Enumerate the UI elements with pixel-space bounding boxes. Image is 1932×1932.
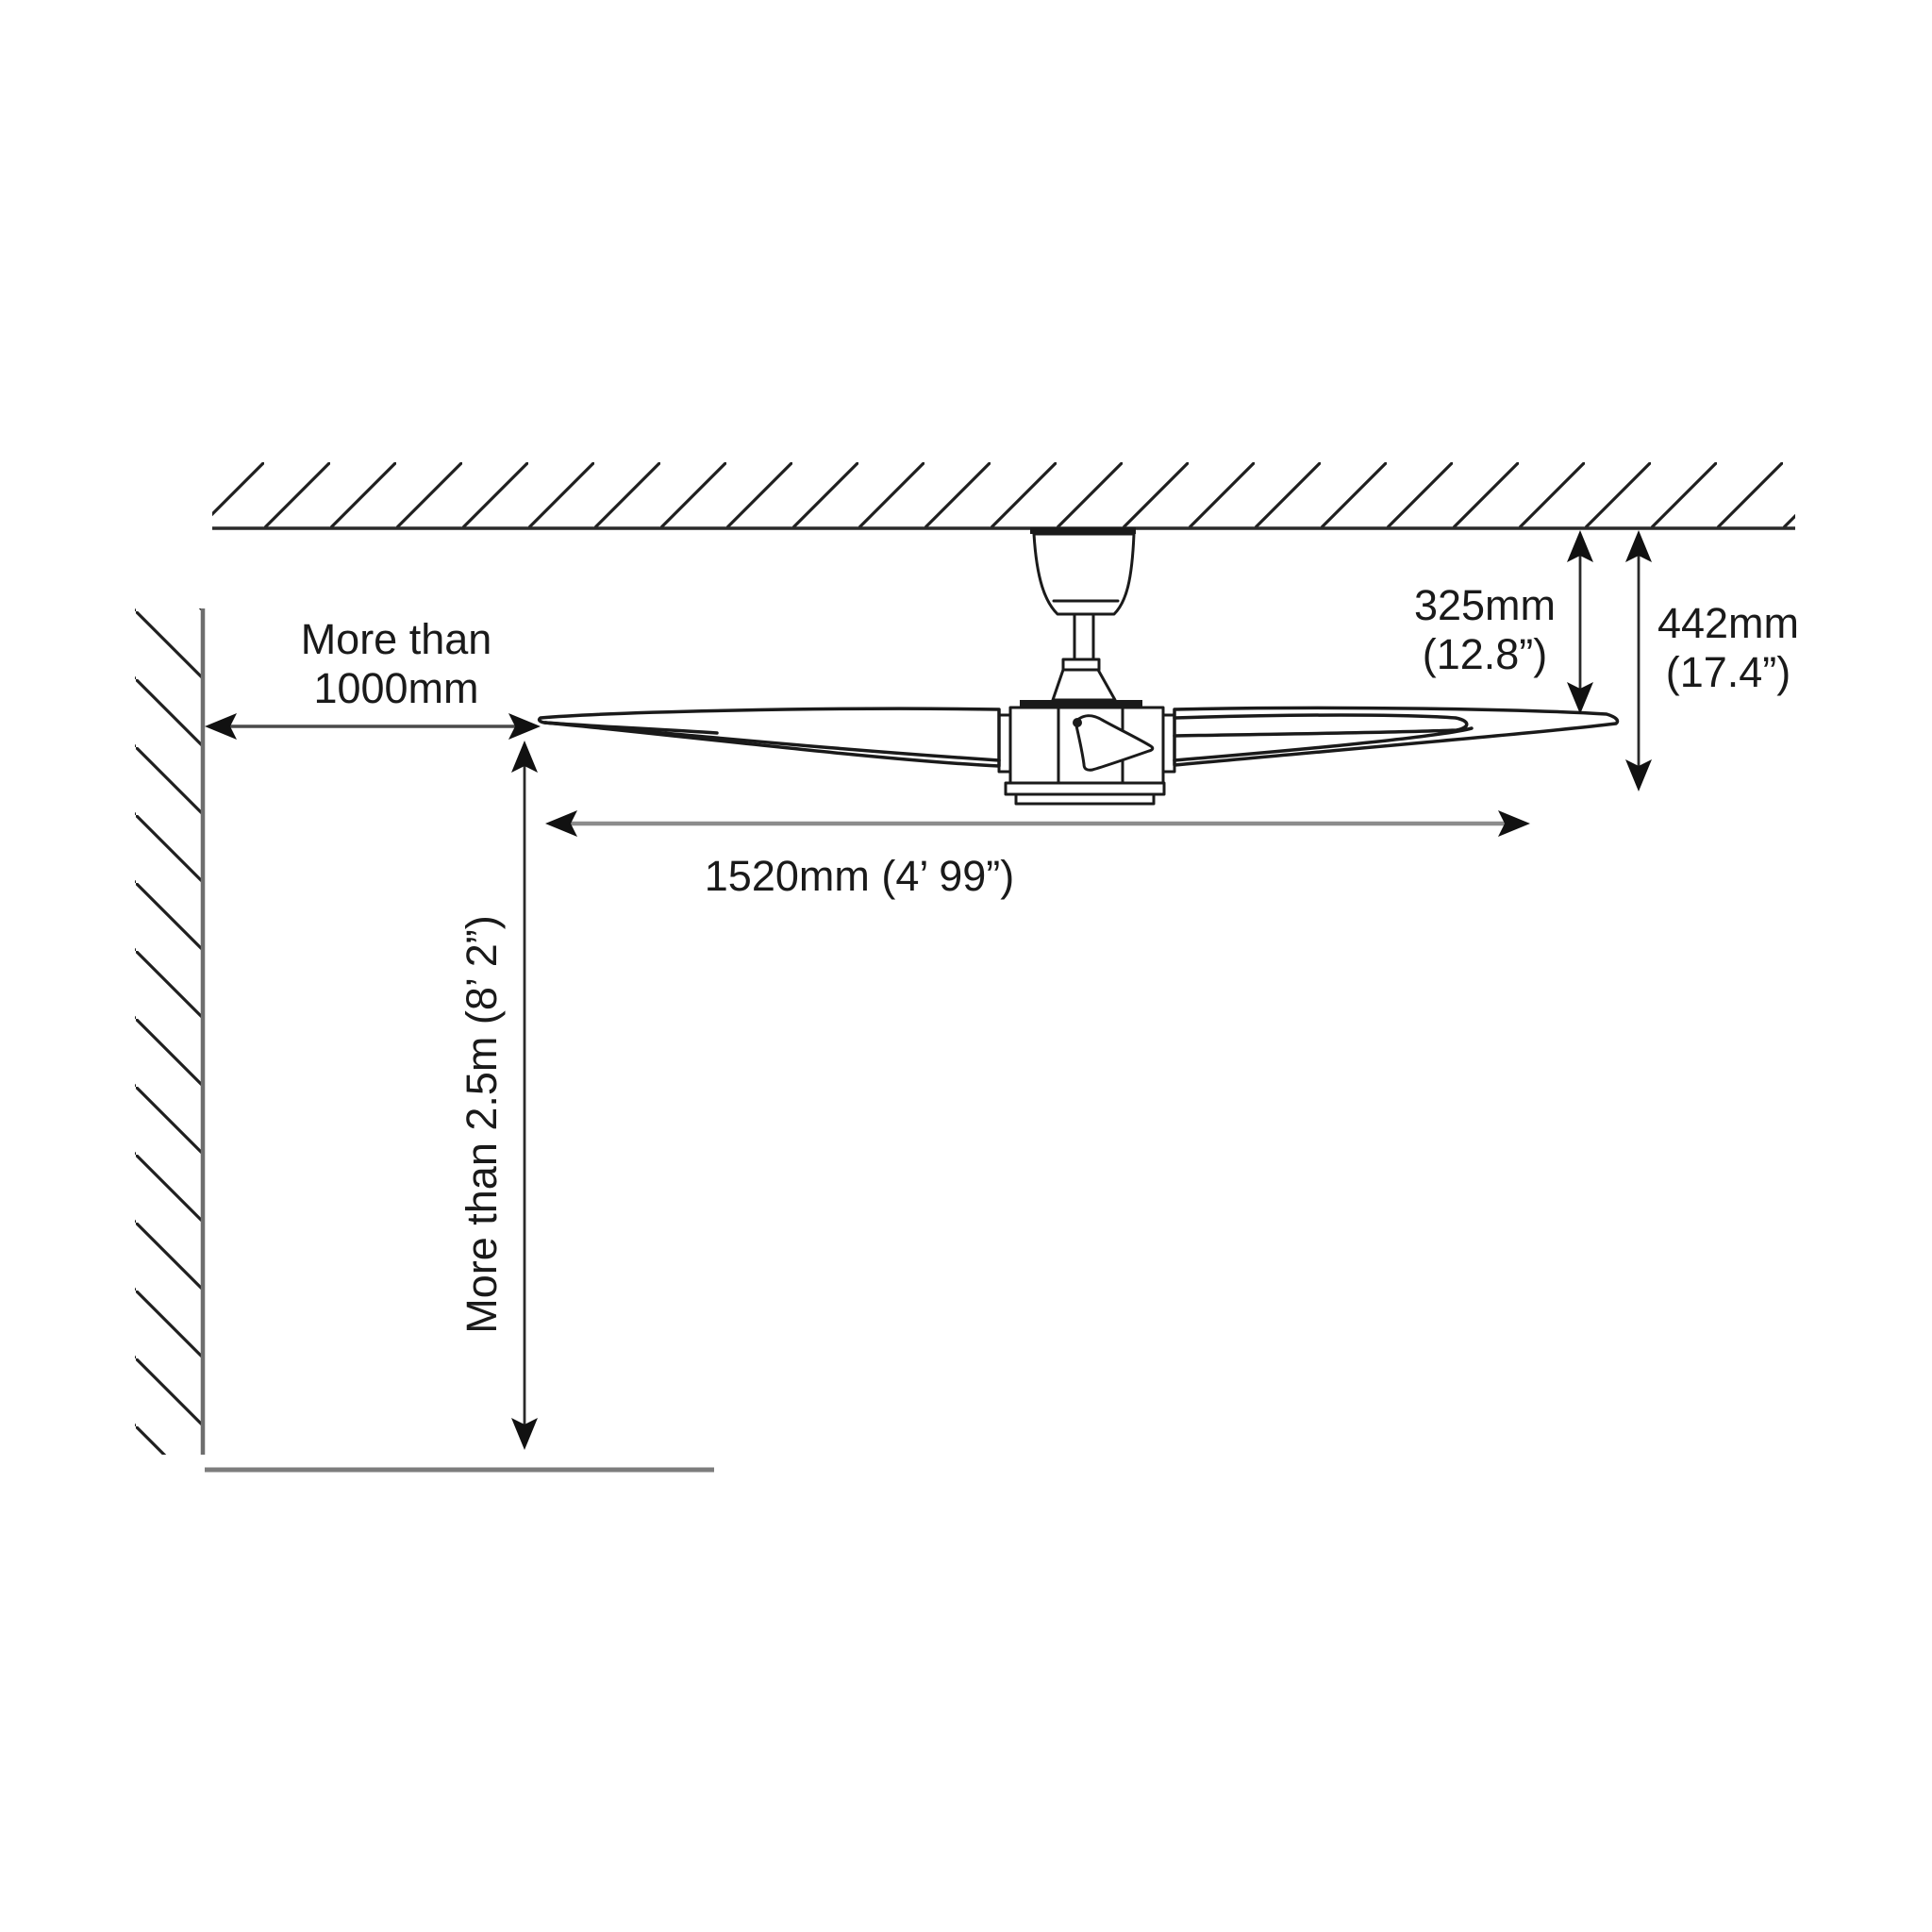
wall-clearance-label: More than 1000mm — [236, 615, 557, 713]
dimension-wall-clearance — [205, 713, 541, 740]
fan-canopy — [1030, 527, 1136, 614]
total-drop-label: 442mm (17.4”) — [1606, 599, 1851, 697]
fan-clearance-drawing — [0, 0, 1932, 1932]
dimension-blade-span — [545, 810, 1530, 837]
dimension-floor-clearance — [511, 741, 538, 1450]
diagram-canvas: More than 1000mm More than 2.5m (8’ 2”) … — [0, 0, 1932, 1932]
ceiling-hatching — [212, 462, 1795, 528]
blade-span-label: 1520mm (4’ 99”) — [624, 852, 1095, 901]
fan-motor-housing — [999, 700, 1174, 804]
fan-downrod — [1053, 614, 1115, 700]
floor-clearance-label: More than 2.5m (8’ 2”) — [458, 908, 505, 1341]
wall-hatching — [135, 608, 203, 1455]
fan-blade-right — [1174, 708, 1618, 765]
ceiling-to-blade-label: 325mm (12.8”) — [1362, 581, 1607, 679]
fan-blade-left — [540, 708, 999, 766]
